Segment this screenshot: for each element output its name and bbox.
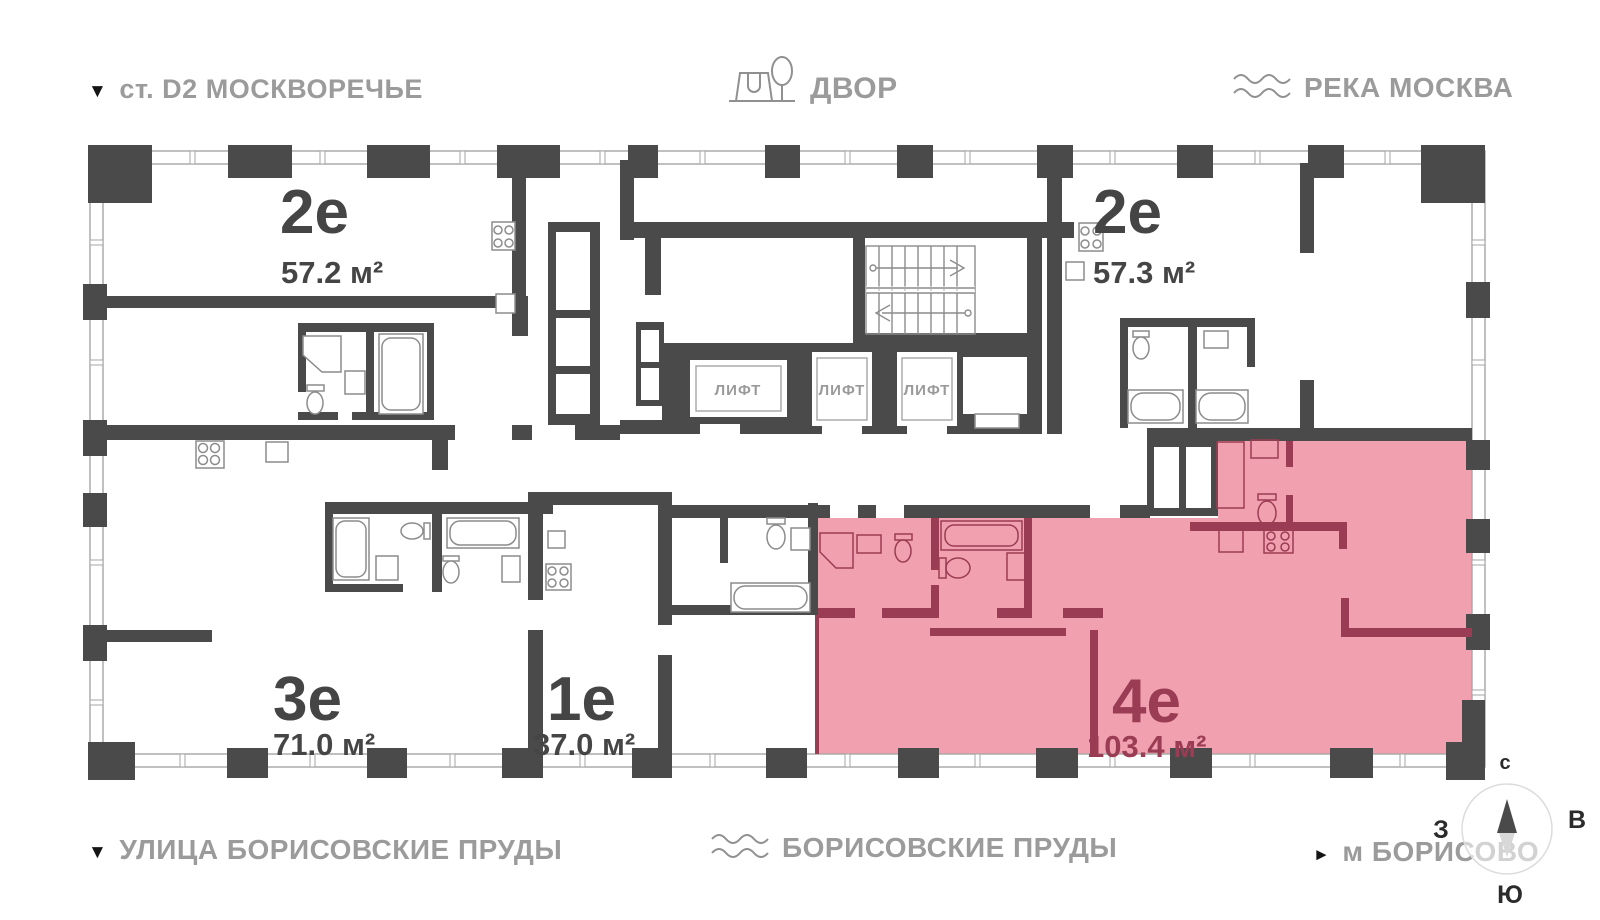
compass-east: В [1568,806,1586,834]
unit-id: 2е [280,178,349,247]
unit-area: 57.3 м² [1093,255,1195,290]
floor-plan: ЛИФТ ЛИФТ ЛИФТ [0,0,1600,920]
compass-west: З [1433,816,1449,844]
unit-area: 71.0 м² [273,727,375,762]
unit-id: 1е [547,665,616,734]
unit-id: 3е [273,665,342,734]
floorplan-page: ▼ ст. D2 МОСКВОРЕЧЬЕ ДВОР РЕКА МОСКВА ▼ … [0,0,1600,920]
apartment-3e-label[interactable]: 3е 71.0 м² [273,665,375,762]
compass-south: Ю [1497,881,1523,909]
unit-area: 37.0 м² [533,727,635,762]
elevator-3-label: ЛИФТ [904,382,951,399]
apartment-1e-label[interactable]: 1е 37.0 м² [533,665,635,762]
unit-id: 2е [1093,178,1162,247]
elevator-1-label: ЛИФТ [715,382,762,399]
unit-area: 103.4 м² [1087,729,1206,764]
compass-north: с [1499,752,1510,774]
elevator-2-label: ЛИФТ [819,382,866,399]
unit-area: 57.2 м² [281,255,383,290]
apartment-2e-left-label[interactable]: 2е 57.2 м² [280,178,383,290]
unit-id: 4е [1112,667,1181,736]
apartment-2e-right-label[interactable]: 2е 57.3 м² [1093,178,1195,290]
staircase [866,246,975,334]
